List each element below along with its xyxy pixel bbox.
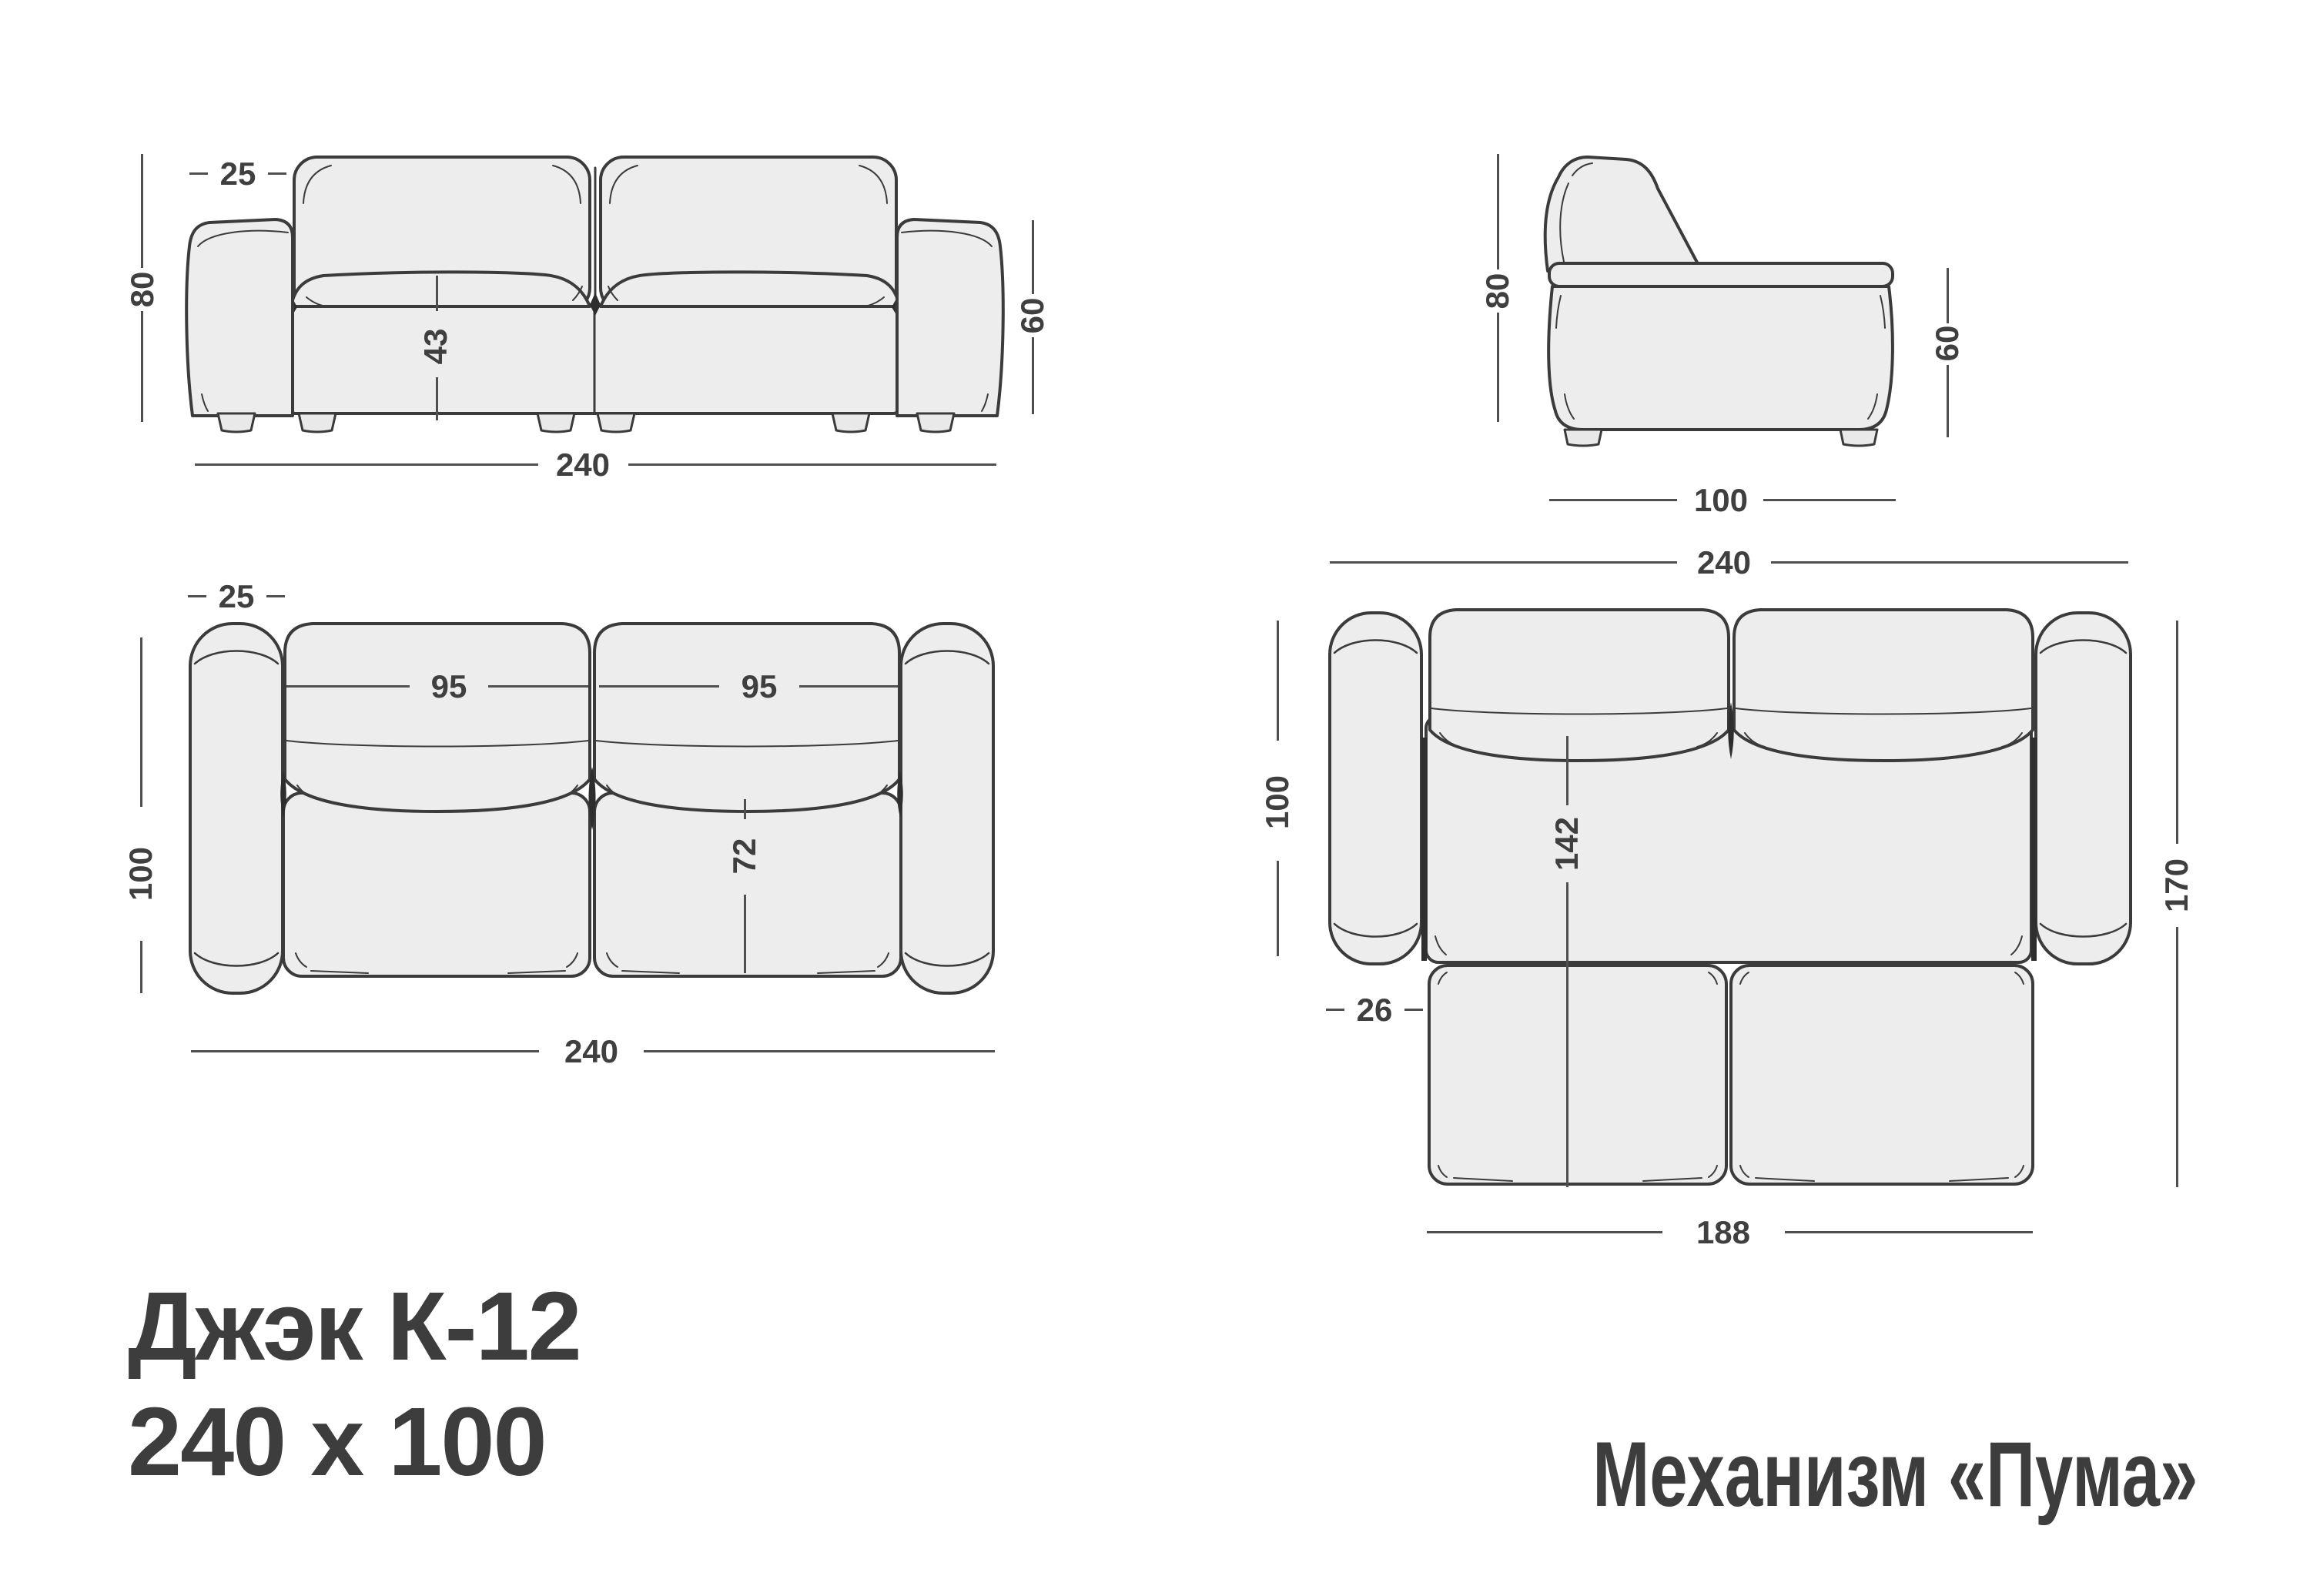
- armrest-left-top: [190, 624, 283, 993]
- junction-shadow: [2031, 738, 2037, 961]
- dim-line: [195, 463, 538, 466]
- armrest-body-side: [1548, 286, 1893, 430]
- dim-line: [744, 895, 746, 973]
- dim-line: [436, 377, 438, 420]
- dim-line: [1566, 882, 1568, 1187]
- armrest-right-top: [2036, 613, 2131, 964]
- dim-line: [2176, 621, 2178, 844]
- dim-dash: [268, 172, 286, 175]
- armrest-left: [186, 219, 293, 416]
- side-view-drawing: [1545, 157, 1893, 446]
- sofa-leg: [598, 413, 634, 432]
- dim-label: 240: [530, 1030, 653, 1073]
- bed-extension-right: [1731, 965, 2033, 1184]
- dim-line: [488, 685, 588, 688]
- dim-dash: [266, 595, 285, 597]
- dim-line: [1277, 621, 1279, 741]
- sofa-leg: [917, 413, 954, 432]
- dim-line: [799, 685, 898, 688]
- product-size: 240 x 100: [128, 1384, 581, 1500]
- dim-line: [1497, 313, 1499, 422]
- product-title: Джэк К-12 240 x 100: [128, 1269, 581, 1500]
- dim-line: [628, 463, 996, 466]
- dim-line: [1427, 1231, 1662, 1233]
- dim-label: 240: [521, 443, 644, 487]
- page: { "title": { "line1": "Джэк К-12", "line…: [0, 0, 2310, 1596]
- top-view-unfolded-drawing: [1330, 610, 2131, 1184]
- dim-label: 188: [1662, 1211, 1785, 1254]
- dim-line: [140, 637, 142, 807]
- dim-line: [2176, 927, 2178, 1187]
- backrest-side: [1545, 157, 1702, 271]
- seat-deck-side: [1549, 263, 1893, 286]
- dim-line: [1330, 561, 1677, 564]
- sofa-leg: [218, 413, 255, 432]
- sofa-leg: [299, 413, 336, 432]
- back-cushion-right-top: [594, 624, 899, 811]
- dim-line: [644, 1050, 995, 1052]
- junction-shadow: [1421, 738, 1427, 961]
- armrest-left-top: [1330, 613, 1421, 964]
- bed-extension-left: [1429, 965, 1726, 1184]
- dim-line: [1277, 861, 1279, 956]
- mechanism-label: Механизм «Пума»: [1592, 1421, 2198, 1527]
- seat-cushion-right: [601, 272, 899, 306]
- dim-line: [1032, 337, 1034, 414]
- product-name: Джэк К-12: [128, 1269, 581, 1384]
- front-view-drawing: [186, 157, 1003, 432]
- back-cushion-left-top: [1430, 610, 1729, 761]
- dim-line: [141, 311, 143, 422]
- sofa-leg: [832, 413, 869, 432]
- sofa-leg: [537, 413, 574, 432]
- dim-line: [1947, 365, 1949, 437]
- dim-label: 100: [1256, 741, 1299, 864]
- dim-line: [140, 941, 142, 993]
- back-cushion-right-top: [1734, 610, 2033, 761]
- armrest-right: [897, 219, 1003, 416]
- dim-dash: [1404, 1009, 1423, 1011]
- sofa-leg: [1840, 430, 1877, 446]
- dim-label: 240: [1662, 541, 1786, 584]
- dim-line: [1771, 561, 2128, 564]
- seat-panel-left: [283, 793, 590, 976]
- top-view-folded-drawing: [190, 624, 993, 993]
- dim-line: [191, 1050, 539, 1052]
- dim-line: [1785, 1231, 2033, 1233]
- back-cushion-left-top: [285, 624, 590, 811]
- dim-line: [1763, 499, 1896, 501]
- sofa-leg: [1565, 430, 1602, 446]
- dim-line: [1549, 499, 1677, 501]
- armrest-right-top: [901, 624, 993, 993]
- dim-label: 100: [119, 812, 162, 935]
